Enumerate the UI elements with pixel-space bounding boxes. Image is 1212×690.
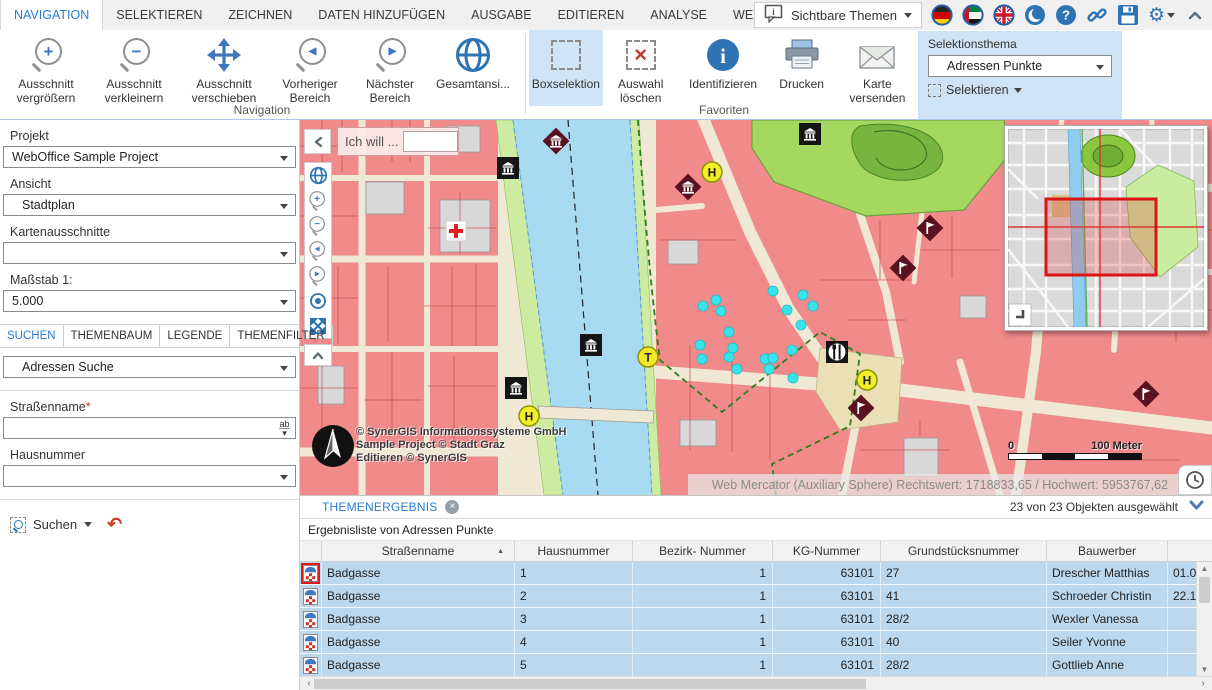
zoom-in-tool[interactable]: + [305,188,331,213]
save-icon[interactable] [1117,4,1139,26]
menu-tab-editieren[interactable]: EDITIEREN [545,0,638,30]
north-arrow-compass [311,424,355,468]
search-magnifier-icon [10,517,26,533]
zoom-to-record-button[interactable] [301,563,320,584]
view-dropdown[interactable]: Stadtplan [3,194,296,216]
svg-text:T: T [644,351,652,365]
scroll-right-icon[interactable]: › [1196,677,1210,690]
results-tab-bar: THEMENERGEBNIS × 23 von 23 Objekten ausg… [300,496,1212,519]
search-button[interactable]: Suchen [33,517,77,532]
map-viewport[interactable]: H H H T + − ◀ ▶ Ich will [300,120,1212,495]
collapse-results-icon[interactable] [1189,499,1204,514]
divider [0,499,299,500]
cell-bezirk-nummer: 1 [633,608,773,630]
dashed-box-icon [551,33,581,77]
group-label-navigation: Navigation [2,103,522,117]
autocomplete-sort-icon[interactable]: a̲b̲▾ [277,420,292,438]
column-header-bauwerber[interactable]: Bauwerber [1047,541,1168,561]
previous-extent-button[interactable]: ◀ Vorheriger Bereich [270,30,350,106]
cell-kg-nummer: 63101 [773,631,881,653]
project-dropdown[interactable]: WebOffice Sample Project [3,146,296,168]
horizontal-scrollbar[interactable]: ‹ › [300,676,1212,690]
center-map-tool[interactable] [305,288,331,313]
pan-arrows-icon [206,33,242,77]
cell-strassenname: Badgasse [322,654,515,676]
ich-will-search-box[interactable]: Ich will ... [337,127,459,156]
magnifier-minus-icon: − [117,33,151,77]
ribbon-group-favorites: Boxselektion × Auswahl löschen i Identif… [529,30,919,119]
overview-collapse-icon[interactable] [1009,304,1031,326]
language-arabic-flag-icon[interactable] [962,4,984,26]
result-list-title: Ergebnisliste von Adressen Punkte [300,519,1212,541]
zoom-out-extent-button[interactable]: − Ausschnitt verkleinern [90,30,178,106]
selection-theme-label: Selektionsthema [918,31,1122,53]
required-asterisk: * [86,400,91,414]
cell-kg-nummer: 63101 [773,585,881,607]
ich-will-input[interactable] [403,131,458,152]
history-clock-button[interactable] [1178,465,1212,495]
map-extents-dropdown[interactable] [3,242,296,264]
language-german-flag-icon[interactable] [931,4,953,26]
left-sidebar: Projekt WebOffice Sample Project Ansicht… [0,120,300,690]
pan-extent-button[interactable]: Ausschnitt verschieben [178,30,270,106]
full-extent-button[interactable]: Gesamtansi... [430,30,516,106]
svg-text:i: i [772,7,775,17]
cell-kg-nummer: 63101 [773,654,881,676]
group-divider [525,34,526,114]
reset-undo-icon[interactable]: ↶ [107,514,122,535]
dashed-box-icon [928,84,941,97]
collapse-map-toolbar-button[interactable] [304,344,332,366]
cell-kg-nummer: 63101 [773,608,881,630]
language-crescent-icon[interactable] [1024,4,1046,26]
cell-grundstuecksnummer: 27 [881,562,1047,584]
scroll-up-icon[interactable]: ▲ [1197,562,1212,576]
collapse-sidebar-button[interactable] [304,129,331,154]
menu-bar: NAVIGATION SELEKTIEREN ZEICHNEN DATEN HI… [0,0,1212,30]
cell-bauwerber: Drescher Matthias [1047,562,1168,584]
visible-themes-button[interactable]: i Sichtbare Themen [754,2,922,28]
restaurant-icon [826,341,848,363]
zoom-to-record-button[interactable] [301,655,320,676]
column-header-hausnummer[interactable]: Hausnummer [515,541,633,561]
box-selection-button[interactable]: Boxselektion [529,30,603,106]
svg-text:i: i [720,44,726,68]
menu-tab-selektieren[interactable]: SELEKTIEREN [103,0,215,30]
scale-dropdown[interactable]: 5.000 [3,290,296,312]
cell-grundstuecksnummer: 40 [881,631,1047,653]
vertical-scroll-thumb[interactable] [1199,577,1210,603]
cell-bauwerber: Seiler Yvonne [1047,631,1168,653]
cell-hausnummer: 5 [515,654,633,676]
envelope-icon [858,33,896,77]
svg-text:H: H [525,410,534,424]
house-number-dropdown[interactable] [3,465,296,487]
search-theme-dropdown[interactable]: Adressen Suche [3,356,296,378]
globe-icon [454,33,492,77]
map-toolbar: + − ◀ ▶ [304,162,332,339]
printer-icon [784,33,820,77]
zoom-out-tool[interactable]: − [305,213,331,238]
group-label-favorites: Favoriten [529,103,919,117]
scale-label: Maßstab 1: [10,273,299,287]
table-row[interactable]: Badgasse 1 1 63101 27 Drescher Matthias … [300,562,1212,585]
cell-hausnummer: 2 [515,585,633,607]
cell-strassenname: Badgasse [322,585,515,607]
table-header: Straßenname▲ Hausnummer Bezirk- Nummer K… [300,541,1212,562]
map-extents-label: Kartenausschnitte [10,225,299,239]
selection-theme-panel: Selektionsthema Adressen Punkte Selektie… [918,31,1122,119]
close-tab-icon[interactable]: × [445,500,459,514]
cell-strassenname: Badgasse [322,631,515,653]
cell-hausnummer: 4 [515,631,633,653]
cell-hausnummer: 1 [515,562,633,584]
magnifier-plus-icon: + [29,33,63,77]
table-row[interactable]: Badgasse 4 1 63101 40 Seiler Yvonne [300,631,1212,654]
sort-ascending-icon: ▲ [497,548,504,555]
coordinate-statusbar: Web Mercator (Auxiliary Sphere) Rechtswe… [688,474,1212,495]
column-header-icon [300,541,322,561]
zoom-to-record-button[interactable] [301,609,320,630]
menu-tab-ausgabe[interactable]: AUSGABE [458,0,544,30]
menu-tab-navigation[interactable]: NAVIGATION [0,0,103,30]
chevron-down-icon [1167,13,1175,18]
chevron-down-icon [1014,88,1022,93]
cell-strassenname: Badgasse [322,608,515,630]
tab-themenbaum[interactable]: THEMENBAUM [64,325,161,347]
cell-bauwerber: Schroeder Christin [1047,585,1168,607]
collapse-ribbon-icon[interactable] [1184,4,1206,26]
overview-map[interactable] [1004,125,1208,331]
cell-bezirk-nummer: 1 [633,631,773,653]
tab-legende[interactable]: LEGENDE [160,325,230,347]
next-extent-button[interactable]: ▶ Nächster Bereich [350,30,430,106]
identify-button[interactable]: i Identifizieren [679,30,768,106]
cell-bezirk-nummer: 1 [633,654,773,676]
scroll-down-icon[interactable]: ▼ [1197,663,1212,677]
link-icon[interactable] [1086,4,1108,26]
speech-info-icon: i [764,4,784,26]
tab-suchen[interactable]: SUCHEN [0,325,64,347]
chevron-down-icon[interactable] [84,522,92,527]
next-extent-tool[interactable]: ▶ [305,263,331,288]
horizontal-scroll-thumb[interactable] [314,679,866,689]
ribbon-group-navigation: + Ausschnitt vergrößern − Ausschnitt ver… [2,30,522,119]
column-header-bezirk-nummer[interactable]: Bezirk- Nummer [633,541,773,561]
scale-bar: 0100 Meter [1008,440,1142,460]
map-attribution: © SynerGIS Informationssysteme GmbH Samp… [356,426,566,465]
magnifier-back-icon: ◀ [293,33,327,77]
ribbon-toolbar: + Ausschnitt vergrößern − Ausschnitt ver… [0,30,1212,120]
gear-icon: ⚙ [1148,6,1165,25]
info-circle-icon: i [705,33,741,77]
tab-themenergebnis[interactable]: THEMENERGEBNIS × [300,500,469,514]
project-label: Projekt [10,129,299,143]
pharmacy-cross-icon [446,221,466,241]
results-panel: THEMENERGEBNIS × 23 von 23 Objekten ausg… [300,495,1212,690]
chevron-down-icon [904,13,912,18]
settings-gear-button[interactable]: ⚙ [1148,4,1175,26]
language-english-flag-icon[interactable] [993,4,1015,26]
cell-bezirk-nummer: 1 [633,562,773,584]
previous-extent-tool[interactable]: ◀ [305,238,331,263]
cell-kg-nummer: 63101 [773,562,881,584]
menu-tab-zeichnen[interactable]: ZEICHNEN [215,0,305,30]
sidebar-tabs: SUCHEN THEMENBAUM LEGENDE THEMENFILTER [0,324,299,348]
table-row[interactable]: Badgasse 2 1 63101 41 Schroeder Christin… [300,585,1212,608]
table-row[interactable]: Badgasse 3 1 63101 28/2 Wexler Vanessa [300,608,1212,631]
divider [0,390,299,391]
cell-bauwerber: Gottlieb Anne [1047,654,1168,676]
help-icon[interactable]: ? [1055,4,1077,26]
svg-text:H: H [708,166,717,180]
zoom-in-extent-button[interactable]: + Ausschnitt vergrößern [2,30,90,106]
cell-strassenname: Badgasse [322,562,515,584]
view-label: Ansicht [10,177,299,191]
house-number-label: Hausnummer [10,448,299,462]
menu-tab-daten-hinzufuegen[interactable]: DATEN HINZUFÜGEN [305,0,458,30]
zoom-to-record-button[interactable] [301,632,320,653]
svg-text:H: H [863,374,872,388]
cell-hausnummer: 3 [515,608,633,630]
selection-theme-dropdown[interactable]: Adressen Punkte [928,55,1112,77]
clear-selection-button[interactable]: × Auswahl löschen [603,30,679,106]
clear-selection-icon: × [626,33,656,77]
cell-grundstuecksnummer: 28/2 [881,608,1047,630]
zoom-to-record-button[interactable] [301,586,320,607]
selection-count-status: 23 von 23 Objekten ausgewählt [1010,500,1178,514]
cell-bezirk-nummer: 1 [633,585,773,607]
column-header-grundstuecksnummer[interactable]: Grundstücksnummer [881,541,1047,561]
column-header-kg-nummer[interactable]: KG-Nummer [773,541,881,561]
cell-grundstuecksnummer: 41 [881,585,1047,607]
selektieren-button[interactable]: Selektieren [918,83,1122,97]
visible-themes-label: Sichtbare Themen [791,8,897,23]
cell-grundstuecksnummer: 28/2 [881,654,1047,676]
street-name-label: Straßenname* [10,400,299,414]
send-map-button[interactable]: Karte versenden [836,30,919,106]
cell-bauwerber: Wexler Vanessa [1047,608,1168,630]
tab-themenfilter[interactable]: THEMENFILTER [230,325,332,347]
table-body: Badgasse 1 1 63101 27 Drescher Matthias … [300,562,1212,677]
table-row[interactable]: Badgasse 5 1 63101 28/2 Gottlieb Anne [300,654,1212,677]
svg-text:?: ? [1062,8,1070,23]
vertical-scrollbar[interactable]: ▲ ▼ [1196,562,1212,677]
extent-rectangle[interactable] [1046,199,1156,275]
menu-right-icons: i Sichtbare Themen ? ⚙ [754,0,1206,30]
magnifier-forward-icon: ▶ [373,33,407,77]
column-header-partial [1168,541,1212,561]
street-name-input[interactable]: a̲b̲▾ [3,417,296,439]
menu-tab-analyse[interactable]: ANALYSE [637,0,720,30]
print-button[interactable]: Drucken [768,30,836,106]
full-extent-tool[interactable] [305,163,331,188]
column-header-strassenname[interactable]: Straßenname▲ [322,541,515,561]
ich-will-label: Ich will ... [338,134,398,149]
